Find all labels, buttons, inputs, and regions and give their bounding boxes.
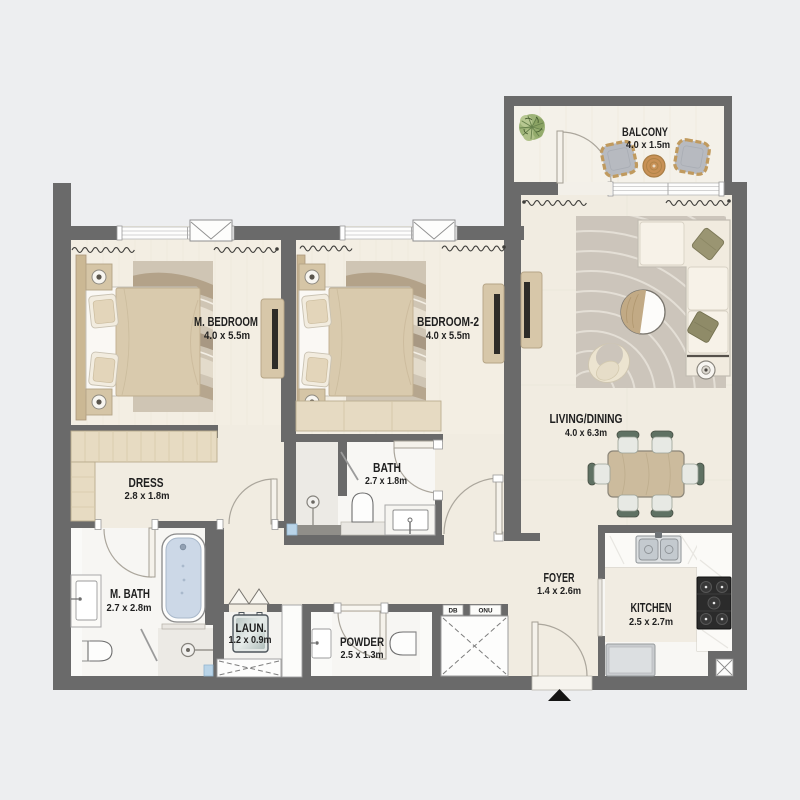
svg-text:2.5 x 2.7m: 2.5 x 2.7m <box>629 616 673 628</box>
svg-text:2.7 x 2.8m: 2.7 x 2.8m <box>107 602 152 614</box>
svg-text:DRESS: DRESS <box>129 476 164 490</box>
svg-text:2.5 x 1.3m: 2.5 x 1.3m <box>341 649 384 661</box>
svg-text:4.0 x 6.3m: 4.0 x 6.3m <box>565 427 607 439</box>
svg-text:4.0 x 1.5m: 4.0 x 1.5m <box>626 140 670 151</box>
svg-text:ONU: ONU <box>479 608 493 615</box>
svg-text:LIVING/DINING: LIVING/DINING <box>550 412 623 426</box>
svg-text:POWDER: POWDER <box>340 635 384 649</box>
svg-text:BATH: BATH <box>373 461 401 475</box>
svg-text:FOYER: FOYER <box>544 571 575 585</box>
svg-text:KITCHEN: KITCHEN <box>631 601 672 615</box>
svg-text:2.7 x 1.8m: 2.7 x 1.8m <box>365 475 407 487</box>
svg-text:BEDROOM-2: BEDROOM-2 <box>417 315 479 329</box>
svg-text:4.0 x 5.5m: 4.0 x 5.5m <box>204 330 250 342</box>
svg-text:BALCONY: BALCONY <box>622 127 668 139</box>
svg-text:LAUN.: LAUN. <box>236 623 267 635</box>
svg-text:1.4 x 2.6m: 1.4 x 2.6m <box>537 585 581 597</box>
svg-text:M. BATH: M. BATH <box>110 587 150 601</box>
svg-text:DB: DB <box>448 608 458 615</box>
svg-text:M. BEDROOM: M. BEDROOM <box>194 315 258 329</box>
svg-text:1.2 x 0.9m: 1.2 x 0.9m <box>229 635 272 646</box>
svg-text:4.0 x 5.5m: 4.0 x 5.5m <box>426 330 470 342</box>
svg-text:2.8 x 1.8m: 2.8 x 1.8m <box>125 490 170 502</box>
